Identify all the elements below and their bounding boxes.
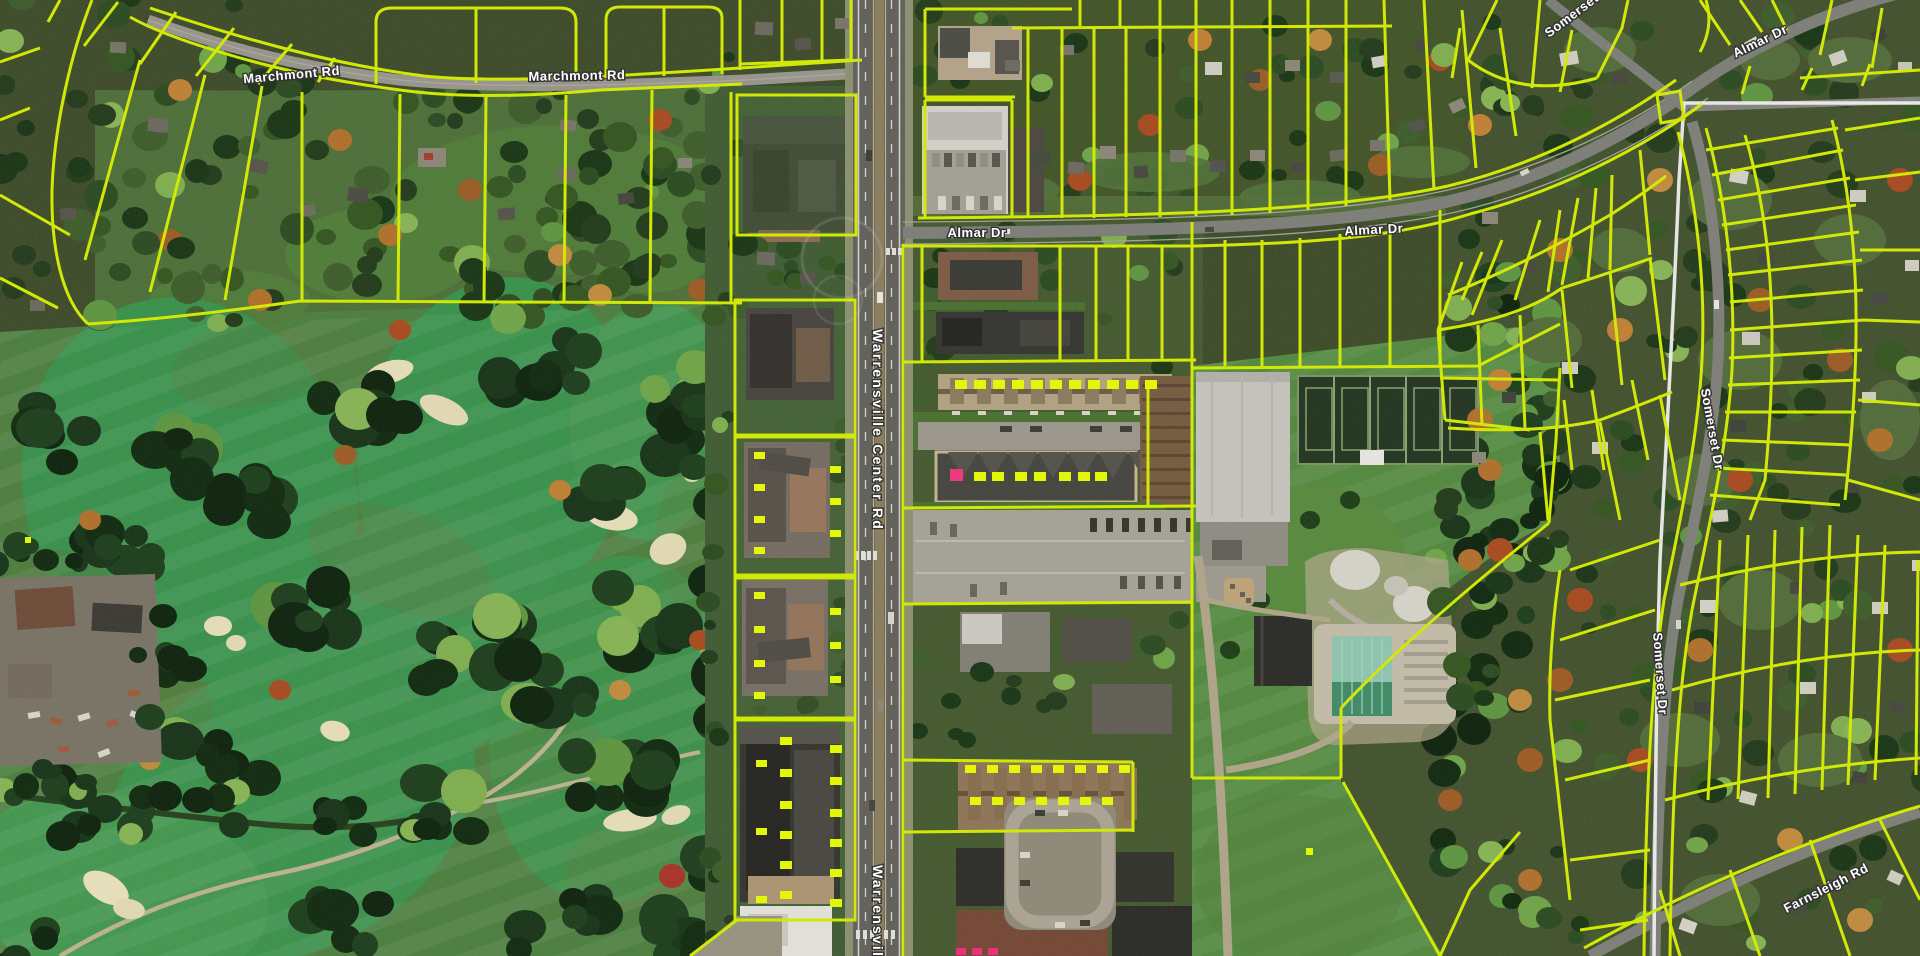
svg-text:Almar Dr: Almar Dr — [1344, 220, 1404, 238]
svg-text:Marchmont Rd: Marchmont Rd — [528, 67, 625, 84]
svg-text:Almar Dr: Almar Dr — [948, 225, 1007, 240]
svg-text:Warrensville Center Rd: Warrensville Center Rd — [870, 329, 886, 531]
svg-text:Warrensville Center Rd: Warrensville Center Rd — [870, 865, 886, 956]
